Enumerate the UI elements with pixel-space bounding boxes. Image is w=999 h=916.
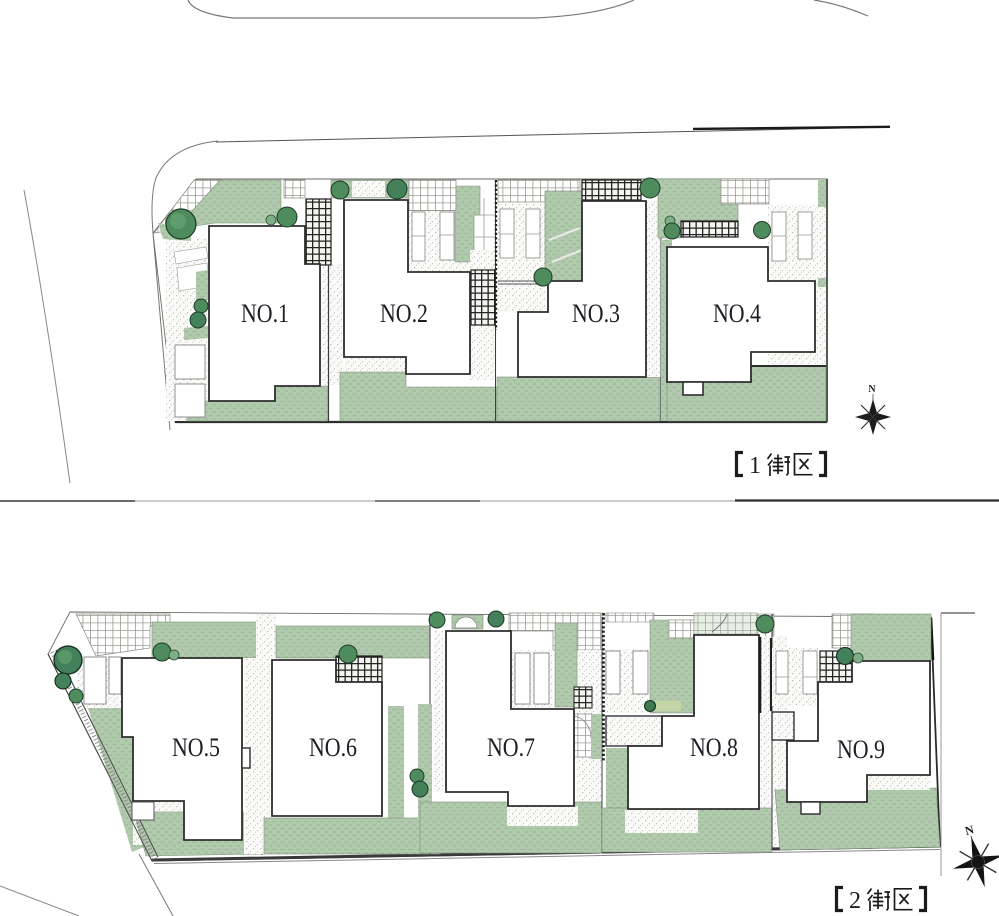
svg-text:NO.8: NO.8	[690, 733, 738, 762]
svg-text:NO.1: NO.1	[241, 299, 289, 328]
svg-text:1: 1	[749, 453, 761, 479]
svg-text:NO.3: NO.3	[572, 299, 620, 328]
svg-text:2: 2	[849, 888, 861, 914]
svg-text:N: N	[868, 384, 876, 395]
svg-text:NO.9: NO.9	[837, 735, 885, 764]
svg-text:NO.4: NO.4	[713, 299, 761, 328]
svg-text:NO.5: NO.5	[172, 733, 220, 762]
svg-text:NO.7: NO.7	[487, 733, 535, 762]
svg-text:NO.2: NO.2	[380, 299, 428, 328]
svg-text:NO.6: NO.6	[309, 733, 357, 762]
